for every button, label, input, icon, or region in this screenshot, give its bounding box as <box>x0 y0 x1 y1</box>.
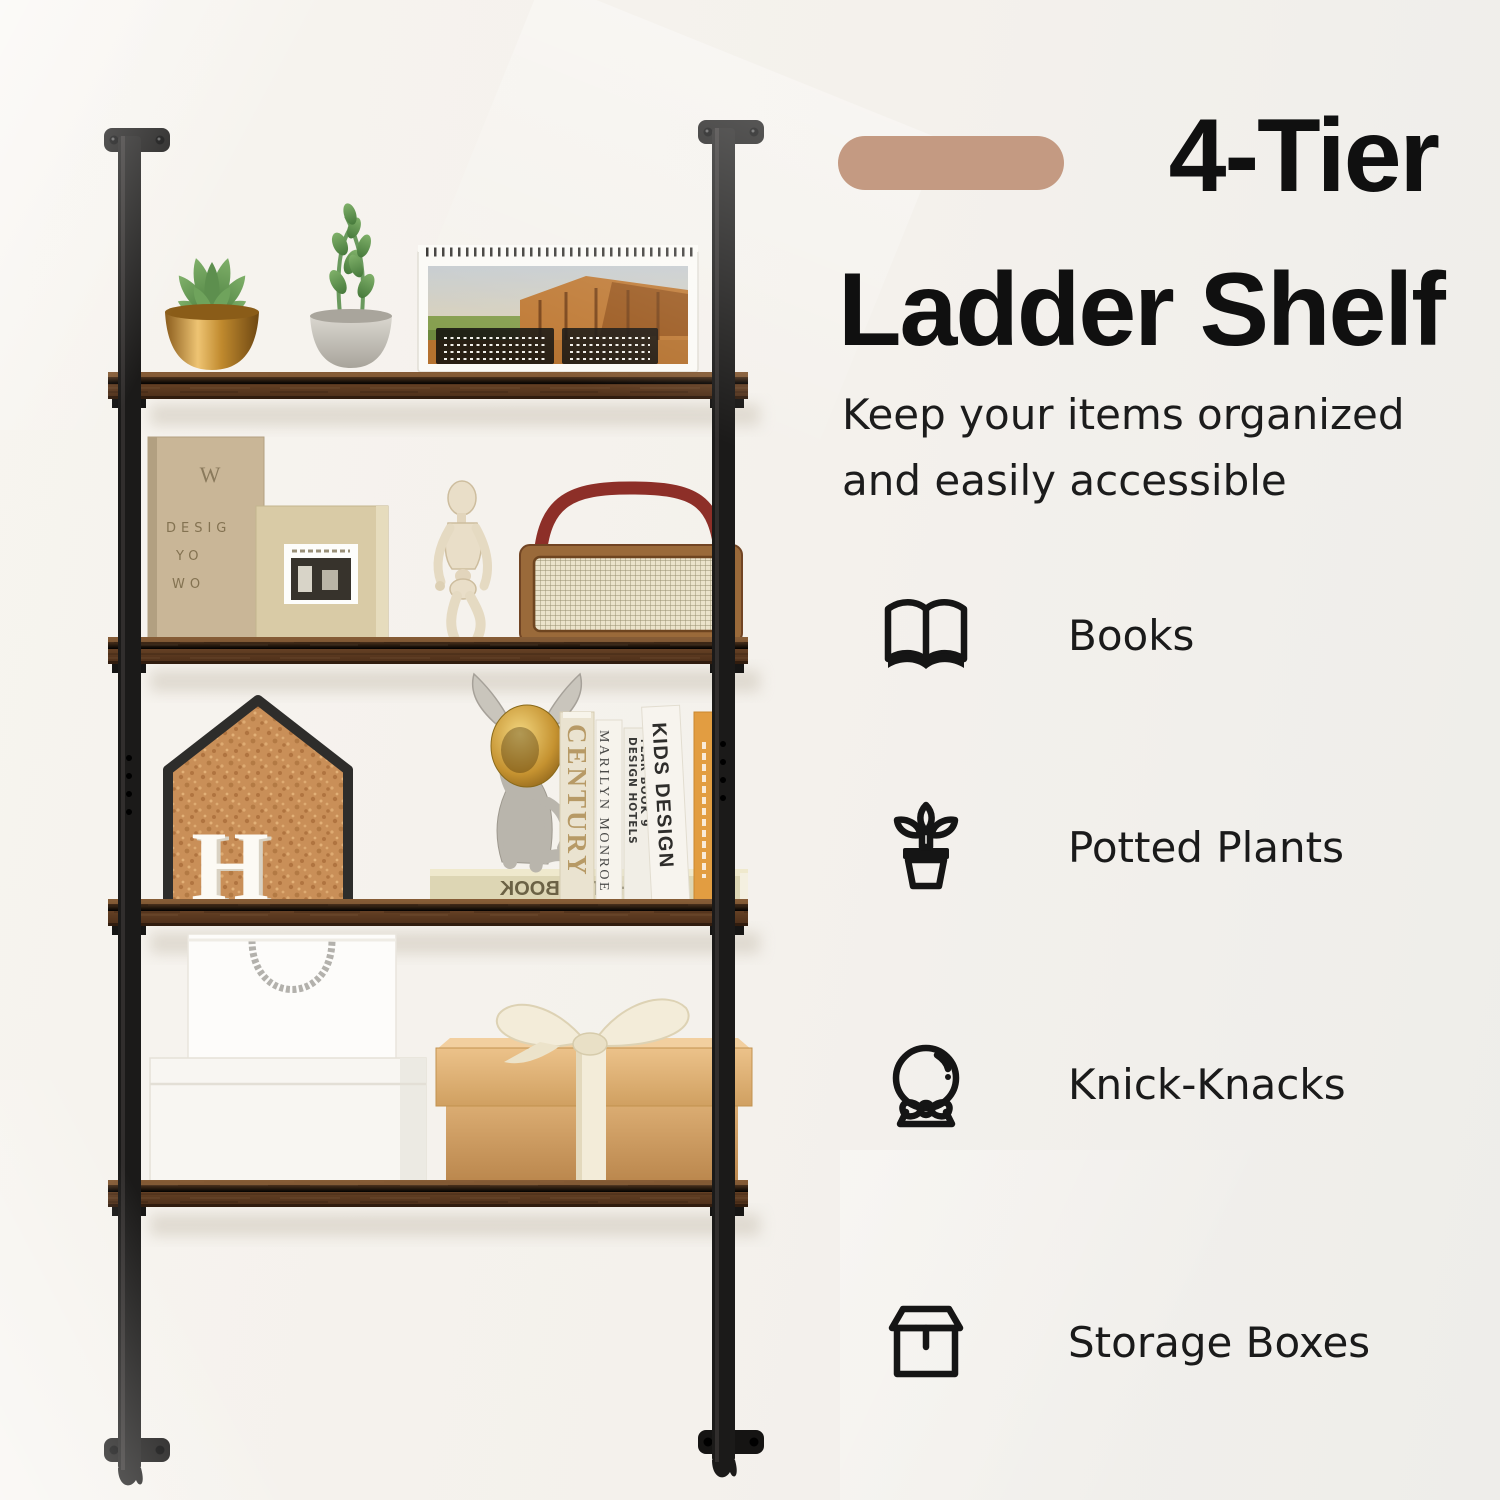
ladder-shelf-scene: W DESIG YO WO <box>0 0 820 1500</box>
feature-potted-plants: Potted Plants <box>878 797 1438 897</box>
page-title-line2: Ladder Shelf <box>838 258 1444 362</box>
feature-label-knick-knacks: Knick-Knacks <box>1068 1060 1346 1109</box>
cork-house-board: H H <box>168 700 348 924</box>
subtitle-line2: and easily accessible <box>842 448 1405 514</box>
vintage-radio <box>520 488 742 643</box>
gray-potted-succulent <box>310 202 392 368</box>
linen-book-text: DESIG <box>166 521 231 536</box>
feature-label-potted-plants: Potted Plants <box>1068 823 1344 872</box>
feature-label-books: Books <box>1068 611 1194 660</box>
book-spine-marilyn: MARILYN MONROE <box>596 730 611 893</box>
feature-books: Books <box>878 585 1438 685</box>
info-panel: 4-Tier Ladder Shelf Keep your items orga… <box>838 0 1450 1500</box>
white-storage-box <box>150 1058 426 1186</box>
photo-book <box>256 506 388 643</box>
shelf-board-4 <box>108 1180 748 1216</box>
feature-label-storage-boxes: Storage Boxes <box>1068 1318 1370 1367</box>
book-spine-design-hotels: DESIGN HOTELS <box>626 737 638 845</box>
subtitle: Keep your items organized and easily acc… <box>842 382 1405 513</box>
snow-globe-icon <box>878 1036 974 1132</box>
subtitle-line1: Keep your items organized <box>842 382 1405 448</box>
product-photo: W DESIG YO WO <box>0 0 820 1500</box>
page-title-line1: 4-Tier <box>1169 104 1438 208</box>
kraft-gift-box <box>436 999 752 1186</box>
left-rail <box>104 128 170 1485</box>
linen-book-monogram: W <box>200 462 221 487</box>
product-infographic: W DESIG YO WO <box>0 0 1500 1500</box>
linen-book-text: WO <box>172 577 205 592</box>
storage-box-icon <box>878 1294 974 1390</box>
wooden-mannequin <box>435 481 487 646</box>
potted-plant-icon <box>878 799 974 895</box>
book-spine-century: CENTURY <box>562 724 592 878</box>
linen-book: W DESIG YO WO <box>148 437 264 643</box>
open-book-icon <box>878 587 974 683</box>
white-shopping-bag <box>188 934 396 1066</box>
accent-pill-decoration <box>838 136 1064 190</box>
shelf-board-2 <box>108 637 748 673</box>
shelf-board-3 <box>108 899 748 935</box>
linen-book-text: YO <box>175 549 203 564</box>
feature-storage-boxes: Storage Boxes <box>878 1292 1438 1392</box>
feature-knick-knacks: Knick-Knacks <box>878 1034 1438 1134</box>
desk-calendar <box>418 245 698 372</box>
shelf-board-1 <box>108 372 748 408</box>
gold-potted-succulent <box>165 256 259 370</box>
title-row: 4-Tier <box>838 104 1438 208</box>
